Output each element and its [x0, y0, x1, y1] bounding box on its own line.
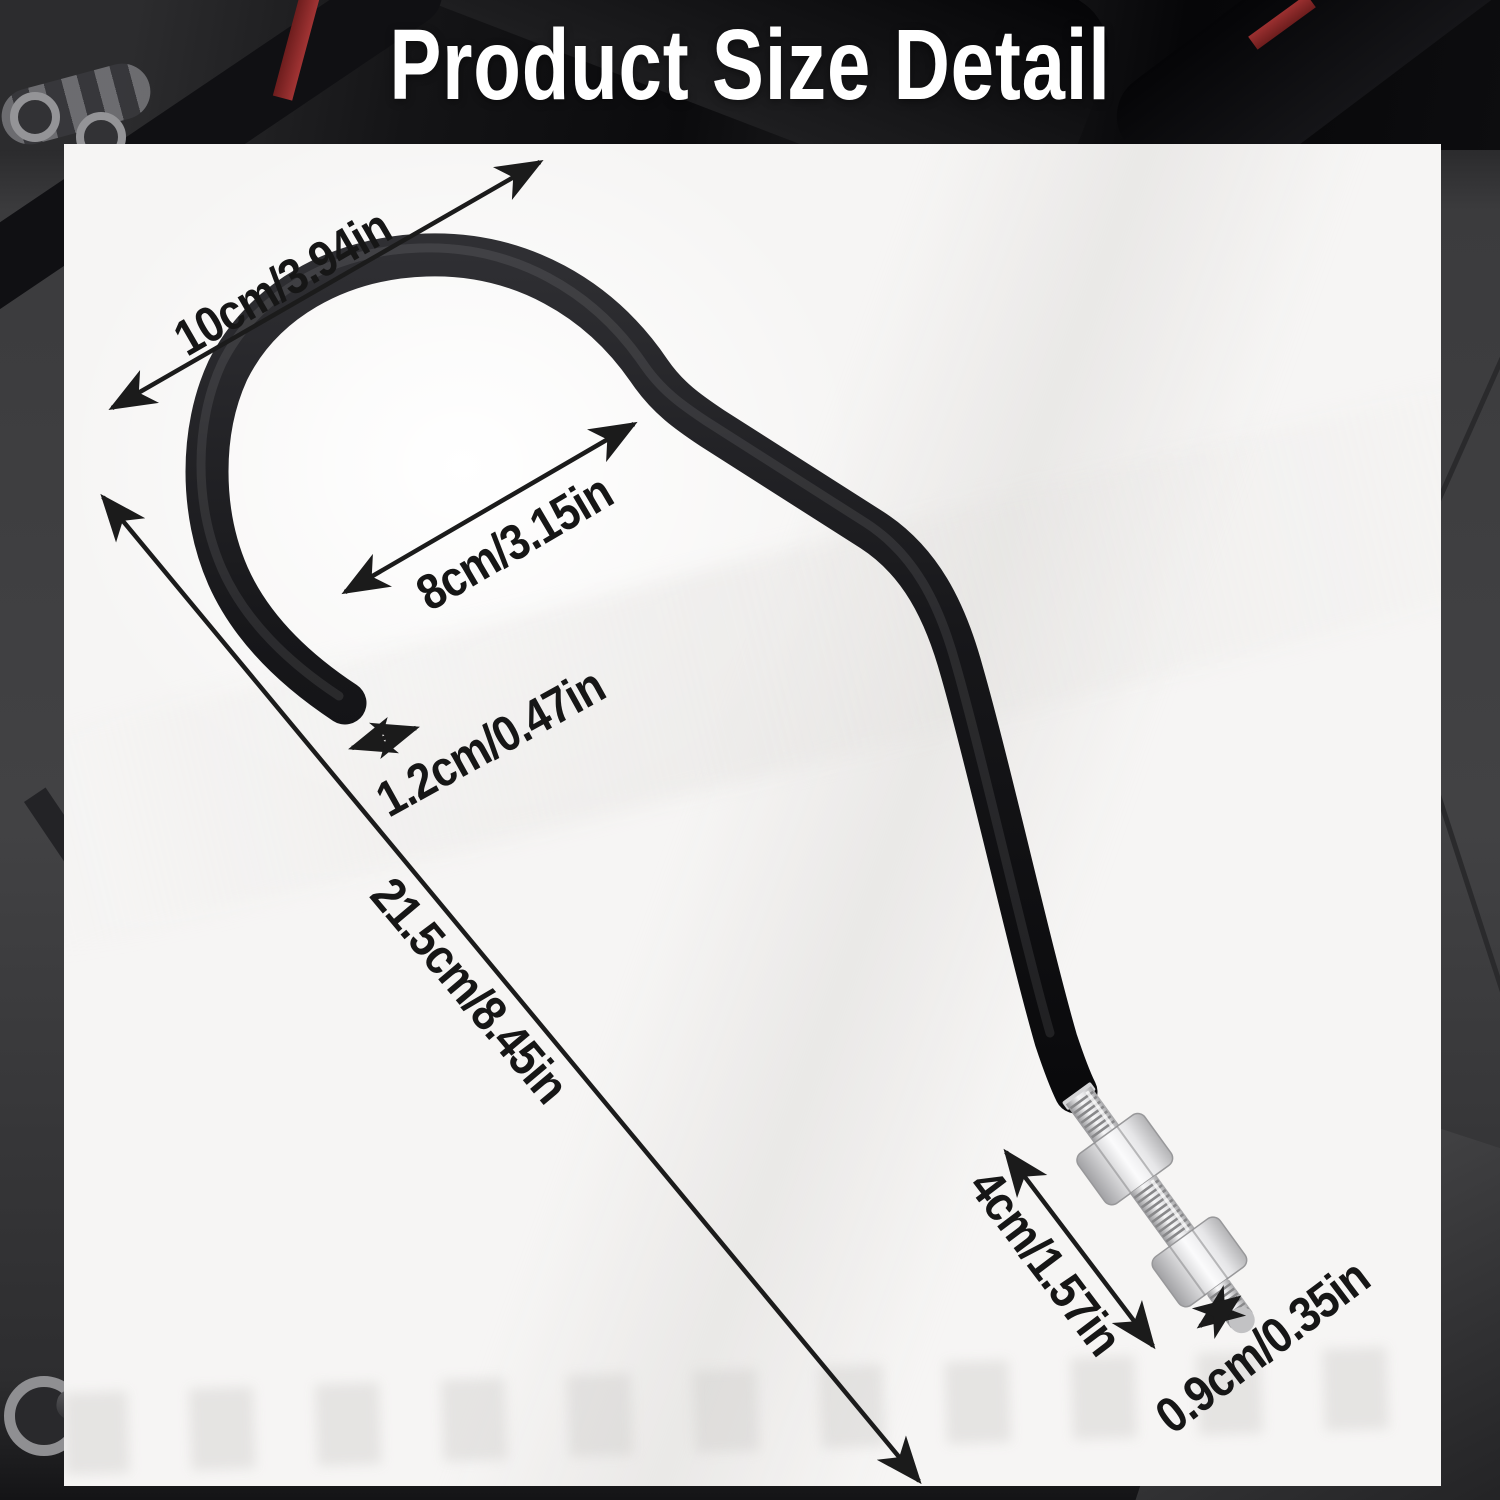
- hook-shape: [201, 248, 1076, 1092]
- dim-label-overall-length: 21.5cm/8.45in: [360, 867, 580, 1114]
- product-size-detail-image: Product Size Detail: [0, 0, 1500, 1500]
- dim-arrow-overall-length: [103, 497, 919, 1481]
- dim-arrow-hook-tip-gap: [352, 728, 416, 748]
- hook-tube: [207, 255, 1076, 1092]
- dim-label-hook-tip-gap: 1.2cm/0.47in: [367, 657, 614, 828]
- size-diagram: 10cm/3.94in 8cm/3.15in 1.2cm/0.47in 21.5…: [0, 0, 1500, 1500]
- dim-label-hook-inner-width: 8cm/3.15in: [407, 463, 622, 621]
